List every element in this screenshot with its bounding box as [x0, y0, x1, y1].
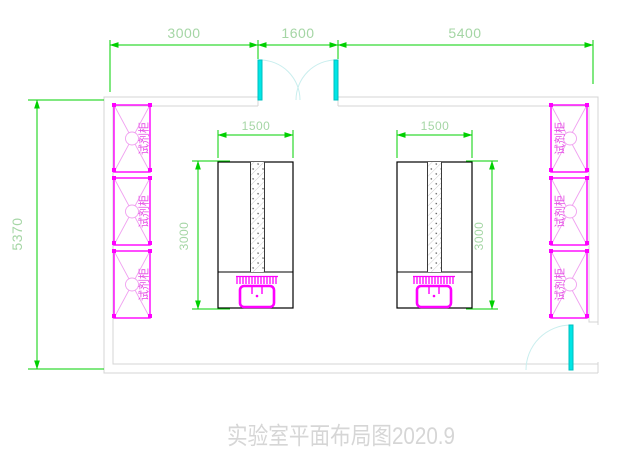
cabinet-label: 试剂柜 — [553, 195, 567, 228]
dim-text-bench-width: 1500 — [242, 119, 271, 133]
cabinet-label: 试剂柜 — [553, 268, 567, 301]
drawing-title: 实验室平面布局图2020.9 — [227, 423, 455, 450]
dim-text-top-left: 3000 — [167, 25, 200, 41]
sink-drain-dot — [256, 295, 259, 298]
dimension-room-height: 5370 — [9, 100, 104, 369]
dim-text-bench-width: 1500 — [421, 119, 450, 133]
double-door-top — [258, 60, 338, 100]
cabinet-label: 试剂柜 — [137, 268, 151, 301]
dim-text-top-door: 1600 — [281, 25, 314, 41]
dimension-extension-lines — [218, 130, 293, 158]
cabinet-knob-circle — [126, 132, 139, 145]
door-leaf-left — [258, 60, 262, 100]
dimension-extension-lines — [110, 40, 593, 92]
dim-text-bench-height: 3000 — [177, 222, 191, 251]
lab-bench-left — [218, 162, 293, 308]
door-leaf — [569, 325, 573, 370]
floor-plan-drawing: 3000 1600 5400 5370 1500 3000 — [0, 0, 619, 469]
cabinet-column-left: 试剂柜 试剂柜 试剂柜 — [112, 103, 152, 318]
dim-text-top-right: 5400 — [448, 25, 481, 41]
bench-hatched-strip — [251, 162, 265, 272]
single-door-right — [526, 325, 573, 370]
cabinet-knob-circle — [126, 205, 139, 218]
lab-bench-right — [397, 162, 472, 308]
dimension-extension-lines — [28, 100, 104, 369]
dimension-extension-lines — [397, 130, 472, 158]
cabinet-knob-circle — [126, 278, 139, 291]
cabinet-label: 试剂柜 — [137, 122, 151, 155]
dim-text-bench-height: 3000 — [472, 222, 486, 251]
bench-hatched-strip — [428, 162, 442, 272]
dimension-chain-top: 3000 1600 5400 — [110, 25, 593, 92]
reagent-cabinet: 试剂柜 — [112, 103, 152, 172]
dim-text-room-height: 5370 — [9, 217, 25, 250]
reagent-cabinet: 试剂柜 — [549, 103, 589, 172]
floor-plan-canvas: 3000 1600 5400 5370 1500 3000 — [0, 0, 619, 469]
cabinet-label: 试剂柜 — [553, 122, 567, 155]
cabinet-column-right: 试剂柜 试剂柜 试剂柜 — [549, 103, 589, 318]
cabinet-label: 试剂柜 — [137, 195, 151, 228]
reagent-cabinet: 试剂柜 — [112, 176, 152, 245]
reagent-cabinet: 试剂柜 — [112, 249, 152, 318]
door-swing-arc — [526, 325, 571, 370]
reagent-cabinet: 试剂柜 — [549, 176, 589, 245]
door-jamb-lines — [258, 97, 338, 106]
reagent-cabinet: 试剂柜 — [549, 249, 589, 318]
door-leaf-right — [334, 60, 338, 100]
door-swing-arcs — [260, 60, 336, 100]
